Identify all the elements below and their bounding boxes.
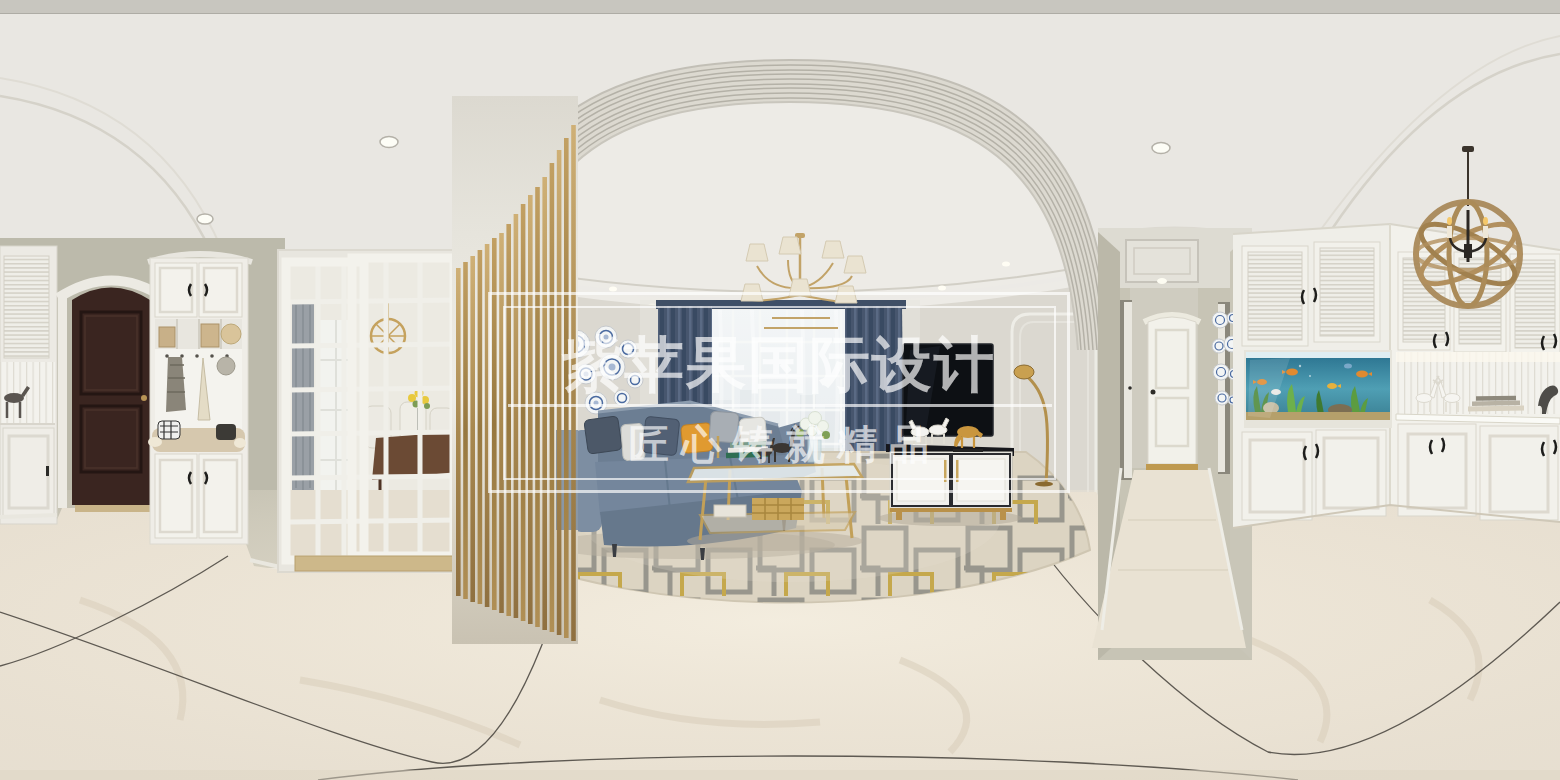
door-handle: [141, 395, 147, 401]
gold-slat-partition: [452, 96, 578, 644]
baseboard-left: [0, 515, 57, 517]
aquarium: [1244, 350, 1392, 428]
side-door-right: [1218, 304, 1225, 472]
entry-storage-unit: [148, 254, 252, 544]
hallway-downlight: [1157, 278, 1167, 284]
entry-door: [58, 281, 164, 513]
threshold-mat: [295, 556, 460, 571]
hallway: [1092, 228, 1252, 660]
hat: [217, 357, 235, 375]
hallway-end-door: [1144, 315, 1200, 470]
left-louver-cabinet: [0, 246, 57, 524]
storage-basket: [159, 327, 175, 347]
stacked-books: [1468, 396, 1524, 412]
right-built-in-cabinets: [1233, 224, 1560, 528]
door-threshold: [75, 505, 150, 512]
storage-basket: [201, 324, 219, 347]
hallway-door-handle: [1151, 390, 1156, 395]
panorama-image: 紫苹果国际设计 匠心铸就精品: [0, 0, 1560, 780]
panorama-scene: [0, 0, 1560, 780]
hallway-ceiling-panel: [1126, 240, 1198, 282]
dining-glass-door: [278, 250, 470, 572]
shelf-books: [714, 505, 746, 517]
side-door-left: [1124, 302, 1132, 478]
straw-hat: [221, 324, 241, 344]
